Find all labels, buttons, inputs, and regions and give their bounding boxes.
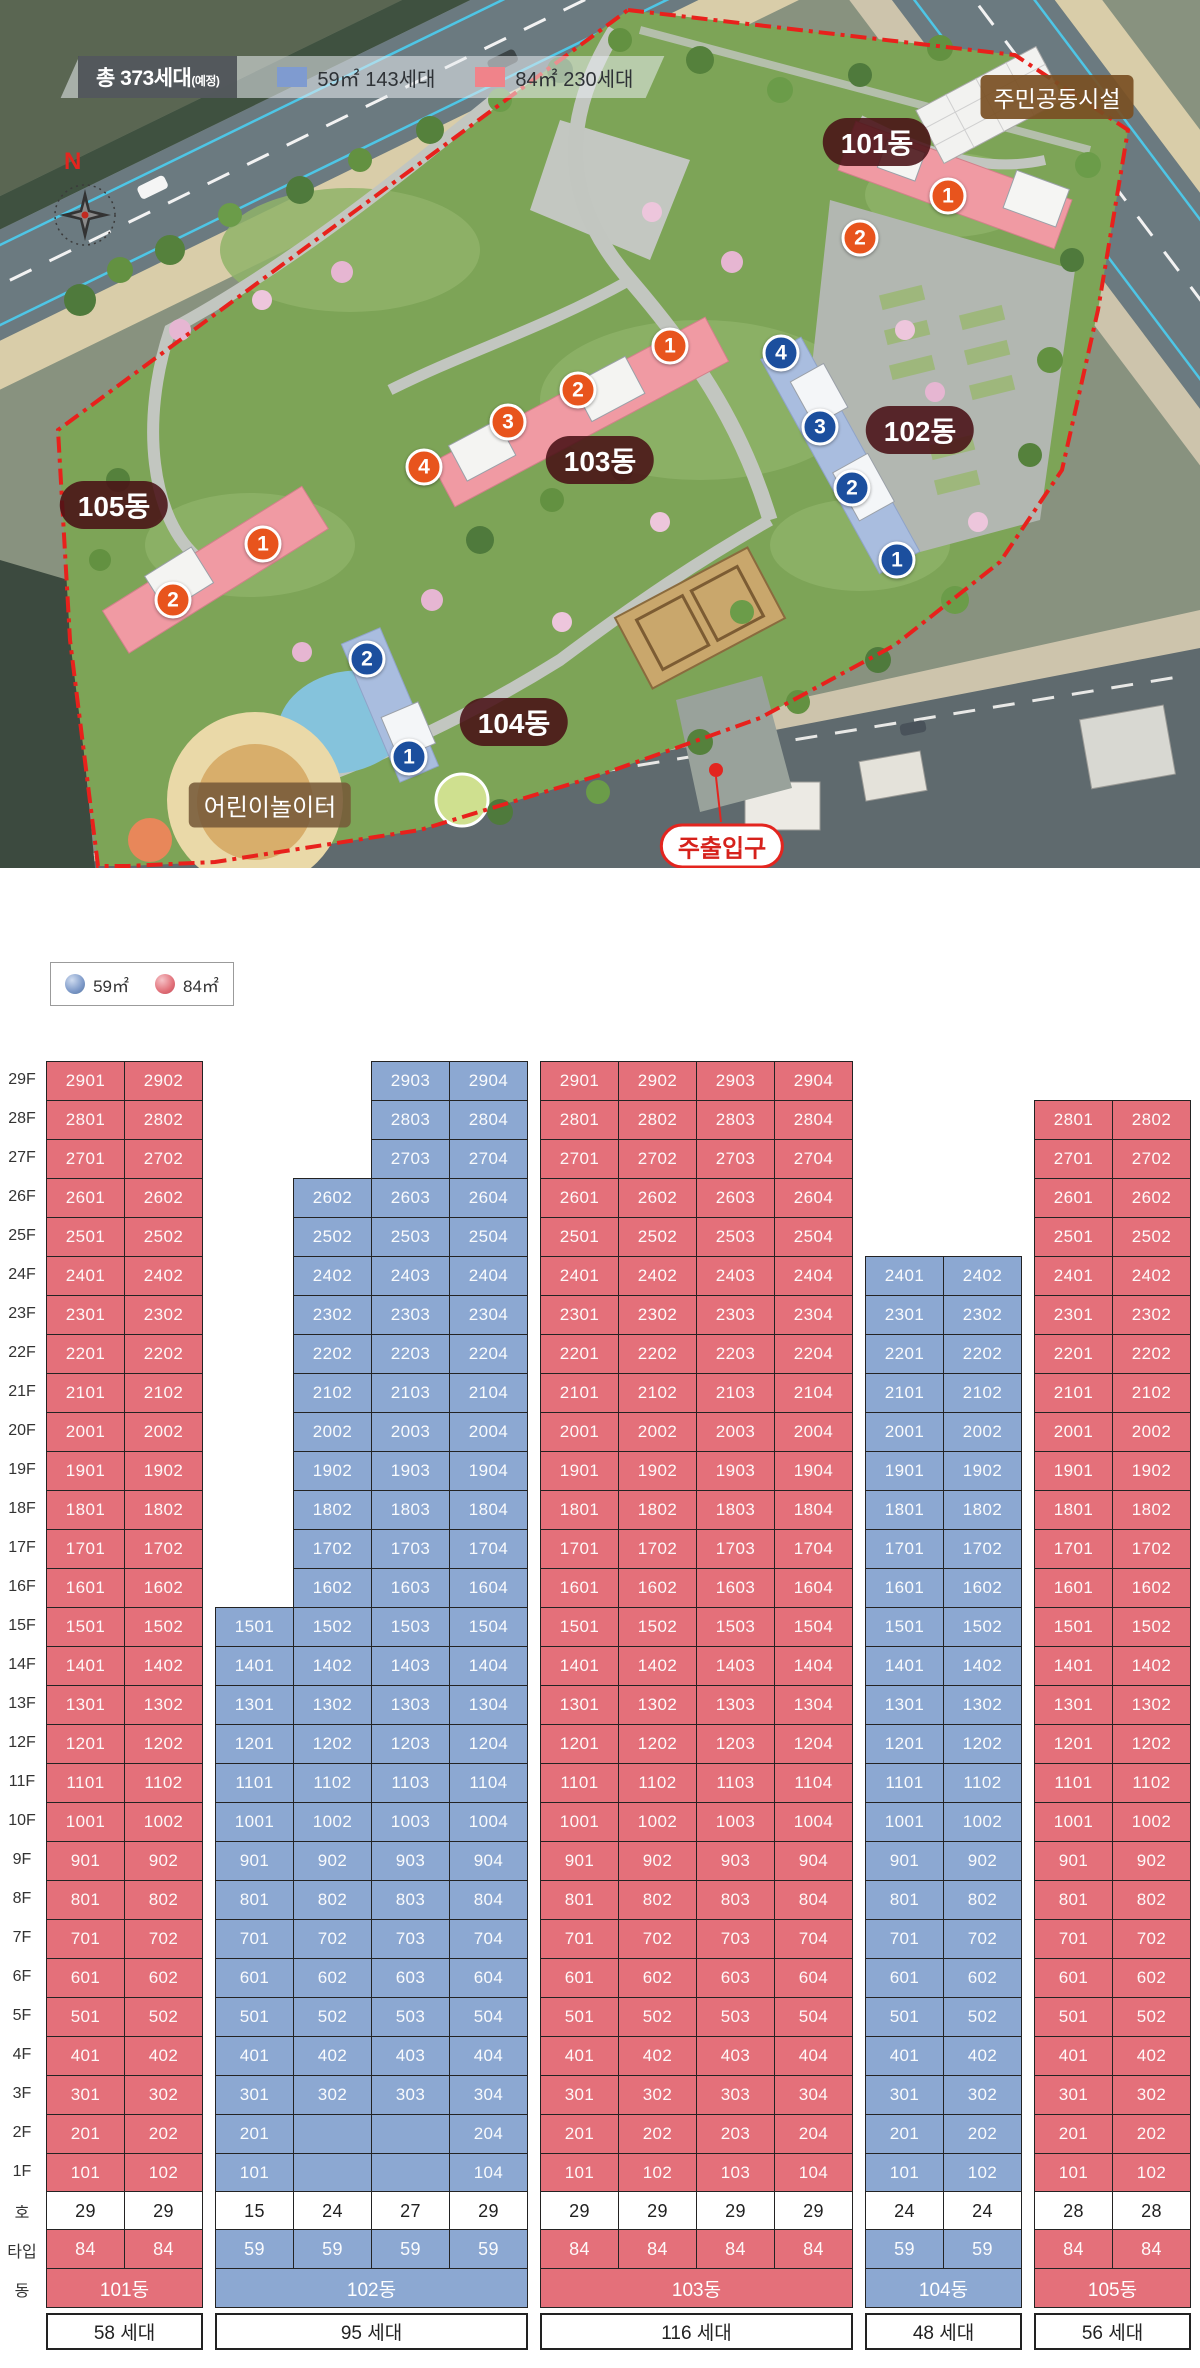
unit-cell: 902 — [943, 1841, 1022, 1881]
unit-cell: 502 — [943, 1997, 1022, 2037]
unit-cell: 2401 — [865, 1256, 944, 1296]
unit-cell: 102 — [943, 2153, 1022, 2193]
unit-cell: 501 — [46, 1997, 125, 2037]
type-row: 5959 — [865, 2230, 1022, 2269]
units-105동: 2801270126012501240123012201210120011901… — [1034, 1100, 1191, 2193]
unit-cell: 1102 — [293, 1763, 372, 1803]
unit-cell: 602 — [1112, 1958, 1191, 1998]
unit-cell: 1203 — [696, 1724, 775, 1764]
unit-cell: 1801 — [1034, 1490, 1113, 1530]
unit-cell: 2101 — [540, 1373, 619, 1413]
unit-cell: 103 — [696, 2153, 775, 2193]
unit-cell: 1402 — [618, 1646, 697, 1686]
unit-cell: 701 — [540, 1919, 619, 1959]
unit-cell: 101 — [46, 2153, 125, 2193]
unit-column: 2903280327032603250324032303220321032003… — [371, 1061, 450, 2193]
unit-cell: 2702 — [618, 1139, 697, 1179]
unit-cell: 104 — [774, 2153, 853, 2193]
unit-cell: 2303 — [696, 1295, 775, 1335]
unit-marker-102동-4: 4 — [763, 335, 800, 372]
unit-cell: 401 — [1034, 2036, 1113, 2076]
unit-cell: 1802 — [1112, 1490, 1191, 1530]
unit-cell: 2703 — [371, 1139, 450, 1179]
unit-cell: 2403 — [696, 1256, 775, 1296]
type-cell: 59 — [943, 2229, 1022, 2269]
floor-label: 16F — [4, 1567, 40, 1607]
type-row: 59595959 — [215, 2230, 528, 2269]
unit-cell: 1201 — [540, 1724, 619, 1764]
unit-cell: 1602 — [293, 1568, 372, 1608]
unit-cell: 801 — [540, 1880, 619, 1920]
legend-item-84: 84㎡ 230세대 — [475, 63, 633, 92]
unit-cell: 1003 — [371, 1802, 450, 1842]
unit-column: 2902280227022602250224022302220221022002… — [618, 1061, 697, 2193]
unit-cell: 501 — [540, 1997, 619, 2037]
floor-label-column: 29F28F27F26F25F24F23F22F21F20F19F18F17F1… — [4, 1060, 40, 2350]
row-header-type: 타입 — [4, 2230, 40, 2270]
unit-cell: 1901 — [540, 1451, 619, 1491]
unit-cell: 903 — [371, 1841, 450, 1881]
unit-cell: 1702 — [293, 1529, 372, 1569]
unit-cell: 2501 — [46, 1217, 125, 1257]
unit-cell: 701 — [1034, 1919, 1113, 1959]
unit-cell: 1102 — [1112, 1763, 1191, 1803]
unit-cell: 2704 — [449, 1139, 528, 1179]
unit-cell: 2604 — [774, 1178, 853, 1218]
unit-cell: 1501 — [1034, 1607, 1113, 1647]
row-header-dong: 동 — [4, 2269, 40, 2309]
ho-cell: 15 — [215, 2191, 294, 2231]
unit-column: 2802270226022502240223022202210220021902… — [1112, 1100, 1191, 2193]
unit-cell: 2602 — [293, 1178, 372, 1218]
floor-label: 7F — [4, 1918, 40, 1958]
unit-cell-x — [293, 2114, 372, 2154]
unit-cell: 1401 — [215, 1646, 294, 1686]
unit-cell: 1501 — [540, 1607, 619, 1647]
unit-cell: 901 — [46, 1841, 125, 1881]
unit-cell: 702 — [1112, 1919, 1191, 1959]
unit-cell: 1502 — [293, 1607, 372, 1647]
type-cell: 84 — [46, 2229, 125, 2269]
floor-label: 3F — [4, 2074, 40, 2114]
unit-cell: 1703 — [696, 1529, 775, 1569]
unit-cell: 1602 — [1112, 1568, 1191, 1608]
chart-legend-item-84: 84㎡ — [155, 972, 219, 997]
unit-cell: 802 — [124, 1880, 203, 1920]
unit-cell: 703 — [371, 1919, 450, 1959]
unit-cell: 1004 — [449, 1802, 528, 1842]
unit-cell: 304 — [449, 2075, 528, 2115]
unit-cell: 1301 — [46, 1685, 125, 1725]
unit-cell: 1403 — [696, 1646, 775, 1686]
ho-row: 29292929 — [540, 2192, 853, 2231]
unit-cell: 1001 — [215, 1802, 294, 1842]
unit-cell: 601 — [540, 1958, 619, 1998]
floor-label: 18F — [4, 1489, 40, 1529]
unit-cell: 404 — [774, 2036, 853, 2076]
north-label: N — [64, 148, 81, 176]
unit-cell: 2802 — [618, 1100, 697, 1140]
unit-cell: 2903 — [696, 1061, 775, 1101]
unit-marker-102동-2: 2 — [834, 470, 871, 507]
unit-cell: 901 — [215, 1841, 294, 1881]
unit-cell: 202 — [1112, 2114, 1191, 2154]
unit-cell: 2601 — [1034, 1178, 1113, 1218]
unit-cell: 301 — [46, 2075, 125, 2115]
unit-cell: 1602 — [943, 1568, 1022, 1608]
floor-label: 28F — [4, 1099, 40, 1139]
unit-cell: 2503 — [696, 1217, 775, 1257]
unit-cell: 402 — [124, 2036, 203, 2076]
type-cell: 59 — [449, 2229, 528, 2269]
unit-cell: 2203 — [371, 1334, 450, 1374]
unit-cell: 2002 — [1112, 1412, 1191, 1452]
units-103동: 2901280127012601250124012301220121012001… — [540, 1061, 853, 2193]
unit-cell: 501 — [215, 1997, 294, 2037]
unit-cell: 1803 — [371, 1490, 450, 1530]
unit-column: 2602250224022302220221022002190218021702… — [293, 1178, 372, 2193]
unit-cell: 2303 — [371, 1295, 450, 1335]
chart-legend: 59㎡ 84㎡ — [50, 962, 234, 1006]
unit-cell: 2302 — [1112, 1295, 1191, 1335]
unit-cell: 1301 — [540, 1685, 619, 1725]
floor-label: 8F — [4, 1879, 40, 1919]
unit-cell: 1702 — [943, 1529, 1022, 1569]
dong-cell: 105동 — [1034, 2268, 1191, 2308]
unit-cell: 704 — [774, 1919, 853, 1959]
unit-cell: 2301 — [1034, 1295, 1113, 1335]
unit-cell: 201 — [215, 2114, 294, 2154]
unit-cell: 2502 — [293, 1217, 372, 1257]
unit-cell: 1704 — [449, 1529, 528, 1569]
ho-cell: 24 — [865, 2191, 944, 2231]
unit-column: 2901280127012601250124012301220121012001… — [46, 1061, 125, 2193]
unit-cell: 1302 — [943, 1685, 1022, 1725]
ho-cell: 24 — [943, 2191, 1022, 2231]
unit-cell: 901 — [1034, 1841, 1113, 1881]
site-legend: 총 373세대(예정) 59㎡ 143세대 84㎡ 230세대 — [78, 56, 633, 98]
unit-cell: 1504 — [774, 1607, 853, 1647]
unit-cell: 2103 — [371, 1373, 450, 1413]
unit-cell: 502 — [1112, 1997, 1191, 2037]
unit-cell: 702 — [618, 1919, 697, 1959]
unit-cell: 502 — [618, 1997, 697, 2037]
unit-cell: 2102 — [618, 1373, 697, 1413]
unit-cell: 302 — [618, 2075, 697, 2115]
unit-cell: 2302 — [943, 1295, 1022, 1335]
unit-cell: 2104 — [449, 1373, 528, 1413]
sedae-cell: 116 세대 — [540, 2313, 853, 2350]
unit-cell: 2201 — [1034, 1334, 1113, 1374]
ho-cell: 29 — [449, 2191, 528, 2231]
unit-cell: 1501 — [215, 1607, 294, 1647]
unit-cell: 2703 — [696, 1139, 775, 1179]
type-row: 8484 — [46, 2230, 203, 2269]
unit-cell: 401 — [215, 2036, 294, 2076]
floor-label: 4F — [4, 2035, 40, 2075]
legend-ball-84-icon — [155, 974, 175, 994]
sedae-cell: 48 세대 — [865, 2313, 1022, 2350]
ho-cell: 29 — [124, 2191, 203, 2231]
unit-marker-101동-2: 2 — [842, 220, 879, 257]
unit-cell: 1801 — [46, 1490, 125, 1530]
unit-cell: 601 — [865, 1958, 944, 1998]
unit-cell: 801 — [1034, 1880, 1113, 1920]
ho-row: 15242729 — [215, 2192, 528, 2231]
unit-cell: 2502 — [1112, 1217, 1191, 1257]
label-community-facility: 주민공동시설 — [981, 75, 1134, 119]
building-block-103동: 2901280127012601250124012301220121012001… — [540, 1061, 853, 2350]
unit-cell-x — [371, 2153, 450, 2193]
unit-cell: 1104 — [449, 1763, 528, 1803]
unit-cell: 1002 — [293, 1802, 372, 1842]
unit-cell: 2602 — [618, 1178, 697, 1218]
unit-cell: 601 — [215, 1958, 294, 1998]
unit-cell: 1002 — [1112, 1802, 1191, 1842]
floor-label: 21F — [4, 1372, 40, 1412]
unit-cell: 803 — [371, 1880, 450, 1920]
unit-cell: 1201 — [215, 1724, 294, 1764]
unit-cell: 202 — [124, 2114, 203, 2154]
unit-cell: 1204 — [449, 1724, 528, 1764]
unit-cell: 2402 — [124, 1256, 203, 1296]
unit-cell: 402 — [943, 2036, 1022, 2076]
ho-row: 2828 — [1034, 2192, 1191, 2231]
floor-label: 20F — [4, 1411, 40, 1451]
unit-cell: 2201 — [540, 1334, 619, 1374]
unit-cell: 2101 — [865, 1373, 944, 1413]
unit-cell: 2701 — [540, 1139, 619, 1179]
unit-cell: 2203 — [696, 1334, 775, 1374]
unit-cell: 1301 — [1034, 1685, 1113, 1725]
unit-cell: 1301 — [215, 1685, 294, 1725]
unit-cell: 2701 — [1034, 1139, 1113, 1179]
unit-cell: 1001 — [1034, 1802, 1113, 1842]
unit-cell: 1801 — [865, 1490, 944, 1530]
unit-cell: 2502 — [618, 1217, 697, 1257]
unit-cell: 2404 — [774, 1256, 853, 1296]
unit-cell: 1601 — [540, 1568, 619, 1608]
type-cell: 59 — [293, 2229, 372, 2269]
unit-cell: 2601 — [46, 1178, 125, 1218]
unit-cell: 2003 — [696, 1412, 775, 1452]
label-building-102동: 102동 — [866, 406, 974, 454]
unit-cell: 1903 — [696, 1451, 775, 1491]
floor-label: 25F — [4, 1216, 40, 1256]
unit-cell: 2802 — [124, 1100, 203, 1140]
label-building-104동: 104동 — [460, 698, 568, 746]
unit-cell: 802 — [293, 1880, 372, 1920]
unit-cell: 104 — [449, 2153, 528, 2193]
unit-cell: 2201 — [865, 1334, 944, 1374]
unit-cell: 1001 — [46, 1802, 125, 1842]
unit-cell: 904 — [774, 1841, 853, 1881]
unit-cell: 2504 — [449, 1217, 528, 1257]
unit-cell: 2001 — [865, 1412, 944, 1452]
chart-legend-label-84: 84㎡ — [183, 972, 219, 997]
unit-cell: 1702 — [1112, 1529, 1191, 1569]
unit-cell: 604 — [774, 1958, 853, 1998]
unit-cell: 1001 — [865, 1802, 944, 1842]
unit-cell: 2402 — [618, 1256, 697, 1296]
unit-cell: 2104 — [774, 1373, 853, 1413]
unit-cell: 1504 — [449, 1607, 528, 1647]
unit-cell: 802 — [618, 1880, 697, 1920]
unit-cell: 1603 — [696, 1568, 775, 1608]
unit-cell: 1402 — [943, 1646, 1022, 1686]
unit-cell: 1403 — [371, 1646, 450, 1686]
unit-cell: 702 — [943, 1919, 1022, 1959]
unit-cell: 1401 — [865, 1646, 944, 1686]
unit-cell: 602 — [943, 1958, 1022, 1998]
legend-ball-59-icon — [65, 974, 85, 994]
unit-cell: 701 — [215, 1919, 294, 1959]
unit-cell: 201 — [540, 2114, 619, 2154]
legend-item-59: 59㎡ 143세대 — [277, 63, 435, 92]
chart-legend-label-59: 59㎡ — [93, 972, 129, 997]
unit-cell: 1804 — [774, 1490, 853, 1530]
dong-cell: 104동 — [865, 2268, 1022, 2308]
unit-marker-105동-2: 2 — [155, 582, 192, 619]
unit-cell: 1701 — [865, 1529, 944, 1569]
unit-cell: 2301 — [865, 1295, 944, 1335]
floor-label: 9F — [4, 1840, 40, 1880]
unit-cell: 2604 — [449, 1178, 528, 1218]
unit-cell: 302 — [1112, 2075, 1191, 2115]
ho-cell: 27 — [371, 2191, 450, 2231]
unit-cell: 2304 — [449, 1295, 528, 1335]
unit-cell: 201 — [46, 2114, 125, 2154]
unit-cell: 2504 — [774, 1217, 853, 1257]
unit-cell: 1401 — [540, 1646, 619, 1686]
unit-cell: 602 — [124, 1958, 203, 1998]
unit-cell: 1501 — [865, 1607, 944, 1647]
unit-cell: 1703 — [371, 1529, 450, 1569]
label-building-101동: 101동 — [823, 118, 931, 166]
unit-cell: 1602 — [618, 1568, 697, 1608]
unit-cell: 2204 — [449, 1334, 528, 1374]
unit-cell: 1702 — [618, 1529, 697, 1569]
floor-label: 5F — [4, 1996, 40, 2036]
unit-cell: 1502 — [943, 1607, 1022, 1647]
floor-label: 13F — [4, 1684, 40, 1724]
unit-cell: 1601 — [1034, 1568, 1113, 1608]
building-block-101동: 2901280127012601250124012301220121012001… — [46, 1061, 203, 2350]
site-plan: 총 373세대(예정) 59㎡ 143세대 84㎡ 230세대 N 주민공동시설… — [0, 0, 1200, 868]
sedae-cell: 56 세대 — [1034, 2313, 1191, 2350]
type-cell: 84 — [540, 2229, 619, 2269]
unit-cell: 1202 — [1112, 1724, 1191, 1764]
unit-cell: 1102 — [124, 1763, 203, 1803]
type-cell: 84 — [774, 2229, 853, 2269]
unit-cell: 1904 — [449, 1451, 528, 1491]
unit-cell: 2803 — [371, 1100, 450, 1140]
unit-cell: 2001 — [540, 1412, 619, 1452]
unit-column: 1501140113011201110110019018017016015014… — [215, 1607, 294, 2193]
unit-cell: 302 — [124, 2075, 203, 2115]
row-header-ho: 호 — [4, 2191, 40, 2231]
unit-cell: 301 — [215, 2075, 294, 2115]
unit-cell: 101 — [1034, 2153, 1113, 2193]
unit-cell-x — [371, 2114, 450, 2154]
ho-cell: 29 — [696, 2191, 775, 2231]
unit-marker-104동-2: 2 — [349, 641, 386, 678]
unit-cell: 201 — [865, 2114, 944, 2154]
unit-cell: 902 — [618, 1841, 697, 1881]
unit-cell: 1802 — [943, 1490, 1022, 1530]
unit-cell: 603 — [371, 1958, 450, 1998]
unit-marker-103동-1: 1 — [652, 328, 689, 365]
floor-label: 14F — [4, 1645, 40, 1685]
unit-cell: 2502 — [124, 1217, 203, 1257]
unit-cell: 1902 — [1112, 1451, 1191, 1491]
unit-cell: 2102 — [124, 1373, 203, 1413]
sedae-cell: 58 세대 — [46, 2313, 203, 2350]
unit-cell: 601 — [1034, 1958, 1113, 1998]
unit-cell: 1503 — [371, 1607, 450, 1647]
unit-cell: 2501 — [1034, 1217, 1113, 1257]
type-cell: 84 — [1112, 2229, 1191, 2269]
unit-cell: 1002 — [124, 1802, 203, 1842]
unit-cell: 2202 — [124, 1334, 203, 1374]
unit-cell: 1502 — [618, 1607, 697, 1647]
type-cell: 84 — [124, 2229, 203, 2269]
unit-cell: 2102 — [1112, 1373, 1191, 1413]
unit-cell: 1804 — [449, 1490, 528, 1530]
building-block-105동: 2801270126012501240123012201210120011901… — [1034, 1100, 1191, 2350]
unit-cell: 2202 — [1112, 1334, 1191, 1374]
unit-cell: 503 — [696, 1997, 775, 2037]
floor-label: 6F — [4, 1957, 40, 1997]
unit-marker-103동-3: 3 — [490, 404, 527, 441]
unit-cell: 102 — [618, 2153, 697, 2193]
label-building-105동: 105동 — [60, 481, 168, 529]
unit-cell: 1604 — [449, 1568, 528, 1608]
total-units-label: 총 373세대(예정) — [78, 56, 237, 98]
building-block-104동: 2401230122012101200119011801170116011501… — [865, 1256, 1022, 2350]
unit-cell: 501 — [1034, 1997, 1113, 2037]
unit-cell: 1601 — [865, 1568, 944, 1608]
floor-label: 29F — [4, 1060, 40, 1100]
sedae-cell: 95 세대 — [215, 2313, 528, 2350]
unit-cell: 2601 — [540, 1178, 619, 1218]
legend-label-59: 59㎡ 143세대 — [317, 63, 435, 92]
floor-label: 24F — [4, 1255, 40, 1295]
unit-cell: 1101 — [1034, 1763, 1113, 1803]
unit-cell: 1402 — [293, 1646, 372, 1686]
unit-cell: 2304 — [774, 1295, 853, 1335]
unit-cell: 702 — [293, 1919, 372, 1959]
unit-cell: 901 — [865, 1841, 944, 1881]
unit-cell: 101 — [215, 2153, 294, 2193]
unit-cell: 604 — [449, 1958, 528, 1998]
unit-cell: 1503 — [696, 1607, 775, 1647]
unit-cell: 2603 — [696, 1178, 775, 1218]
unit-cell: 804 — [449, 1880, 528, 1920]
unit-cell: 202 — [618, 2114, 697, 2154]
unit-cell: 1302 — [124, 1685, 203, 1725]
unit-column: 2901280127012601250124012301220121012001… — [540, 1061, 619, 2193]
unit-cell: 301 — [540, 2075, 619, 2115]
unit-cell: 2402 — [293, 1256, 372, 1296]
unit-cell: 1401 — [1034, 1646, 1113, 1686]
unit-marker-103동-2: 2 — [560, 372, 597, 409]
floor-label: 27F — [4, 1138, 40, 1178]
unit-cell: 2702 — [1112, 1139, 1191, 1179]
unit-cell: 2002 — [943, 1412, 1022, 1452]
unit-cell: 801 — [865, 1880, 944, 1920]
unit-cell: 2503 — [371, 1217, 450, 1257]
